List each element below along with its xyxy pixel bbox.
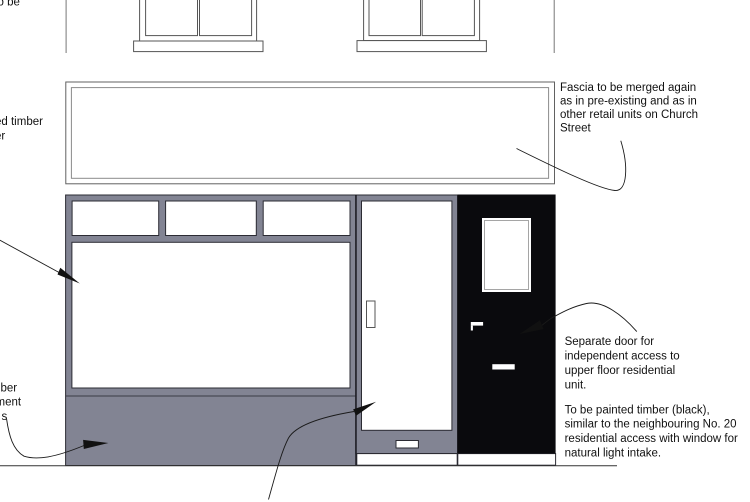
svg-text:residential access with window: residential access with window for xyxy=(565,433,738,445)
svg-text:independent access to: independent access to xyxy=(565,351,680,363)
svg-text:Fascia to be merged again: Fascia to be merged again xyxy=(560,82,696,94)
svg-text:Separate door for: Separate door for xyxy=(565,336,655,348)
svg-text:To be painted timber (black),: To be painted timber (black), xyxy=(565,404,710,416)
svg-text:natural light intake.: natural light intake. xyxy=(565,447,662,459)
svg-text:unit.: unit. xyxy=(565,379,587,391)
svg-text:ber: ber xyxy=(1,382,18,394)
svg-text:er: er xyxy=(0,131,5,143)
svg-text:Street: Street xyxy=(560,123,591,135)
svg-text:other retail units on Church: other retail units on Church xyxy=(560,109,698,121)
svg-text:s: s xyxy=(2,411,8,423)
svg-text:ed timber: ed timber xyxy=(0,116,43,128)
svg-text:o be: o be xyxy=(0,0,20,9)
svg-text:upper floor residential: upper floor residential xyxy=(565,365,676,377)
svg-text:similar to the neighbouring No: similar to the neighbouring No. 20 xyxy=(565,419,737,431)
svg-text:as in pre-existing and as in: as in pre-existing and as in xyxy=(560,96,697,108)
svg-text:ment: ment xyxy=(0,397,22,409)
